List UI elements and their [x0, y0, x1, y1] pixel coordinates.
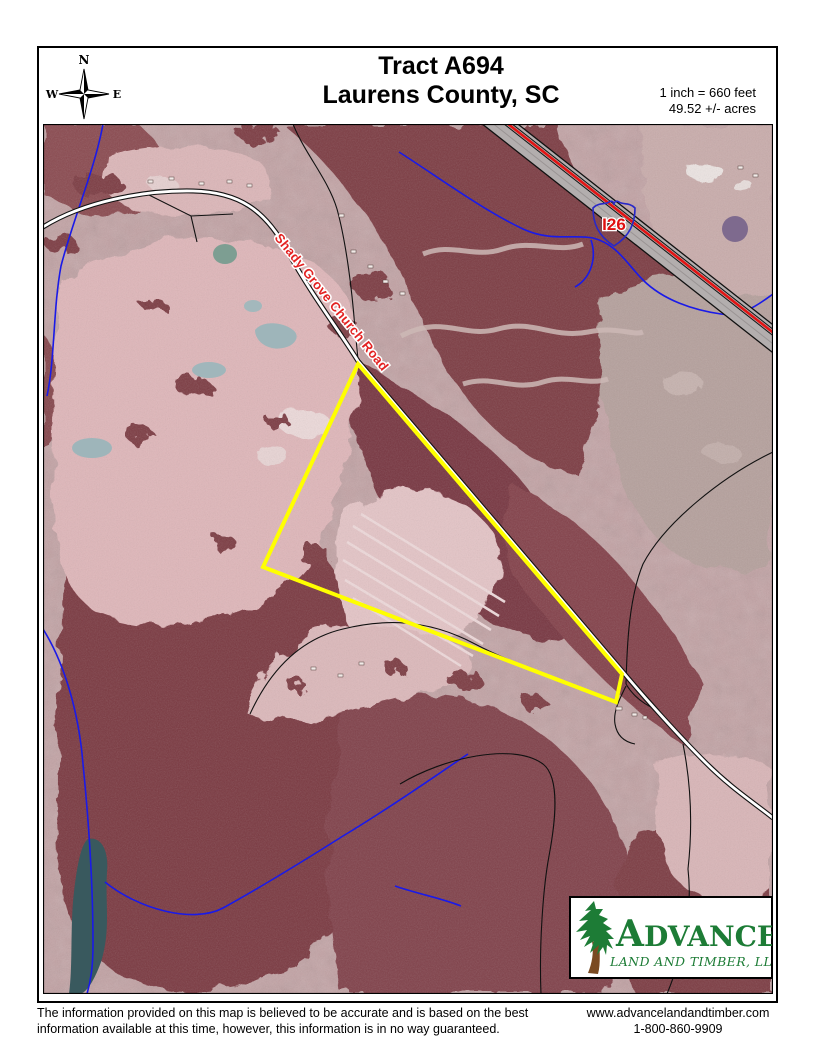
- logo-subtitle: LAND AND TIMBER, LLC: [609, 954, 773, 969]
- scale-text: 1 inch = 660 feet: [600, 85, 756, 101]
- website-text: www.advancelandandtimber.com: [578, 1006, 778, 1022]
- map-page: N E S W Tract A694 Laurens County, SC 1 …: [0, 0, 816, 1056]
- map-title: Tract A694 Laurens County, SC: [241, 52, 641, 110]
- county-title: Laurens County, SC: [241, 81, 641, 110]
- i26-shield-label: I26: [602, 215, 626, 234]
- disclaimer: The information provided on this map is …: [37, 1006, 567, 1037]
- compass-e-label: E: [113, 88, 121, 101]
- scale-info: 1 inch = 660 feet 49.52 +/- acres: [600, 85, 756, 117]
- aerial-map-image: I26 Shady Grove Church Road: [43, 124, 773, 994]
- compass-w-label: W: [45, 88, 59, 101]
- disclaimer-line1: The information provided on this map is …: [37, 1006, 567, 1022]
- compass-n-label: N: [79, 53, 90, 67]
- aerial-map: I26 Shady Grove Church Road: [43, 124, 773, 994]
- tract-title: Tract A694: [241, 52, 641, 81]
- logo-box: ADVANCE LAND AND TIMBER, LLC: [570, 897, 773, 978]
- logo-wordmark: ADVANCE: [615, 913, 773, 955]
- acreage-text: 49.52 +/- acres: [600, 101, 756, 117]
- contact-info: www.advancelandandtimber.com 1-800-860-9…: [578, 1006, 778, 1037]
- disclaimer-line2: information available at this time, howe…: [37, 1022, 567, 1038]
- phone-text: 1-800-860-9909: [578, 1022, 778, 1038]
